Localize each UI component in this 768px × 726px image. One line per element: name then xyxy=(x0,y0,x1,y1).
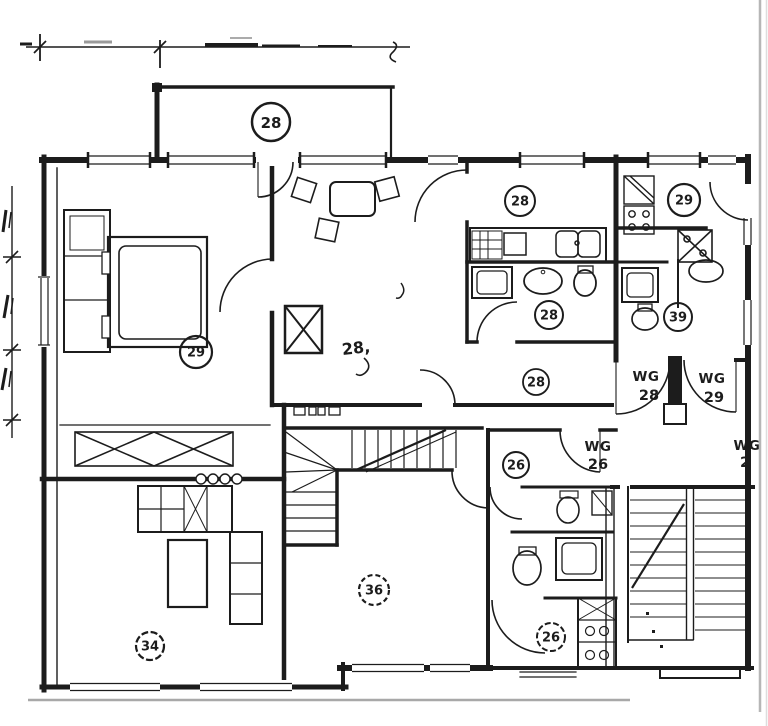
svg-text:WG: WG xyxy=(633,369,660,385)
chimney-shaft xyxy=(285,306,322,353)
room-number-living-handwritten: 28, xyxy=(341,283,404,375)
bed xyxy=(102,237,207,347)
kitchenette xyxy=(578,598,616,668)
dining-set xyxy=(291,177,399,242)
stove-icon xyxy=(624,206,654,234)
radiator-symbols xyxy=(294,407,340,415)
plan-canvas: 28 29 28 28 28 29 39 26 xyxy=(0,0,768,726)
shower-icon xyxy=(472,267,512,298)
room-number-hall-left: 28 xyxy=(523,369,549,395)
room-number-bath-left: 28 xyxy=(535,301,563,329)
room-number-kitchen-left: 28 xyxy=(505,186,535,216)
svg-text:29: 29 xyxy=(187,346,205,361)
floor-plan-scan: 28 29 28 28 28 29 39 26 xyxy=(0,0,768,726)
svg-text:26: 26 xyxy=(542,631,560,646)
svg-text:28: 28 xyxy=(527,376,545,391)
toilet-icon xyxy=(574,266,596,296)
stair-break-line xyxy=(632,504,684,588)
double-sink-icon xyxy=(556,231,600,257)
door-arc xyxy=(415,170,467,222)
svg-text:26: 26 xyxy=(507,459,525,474)
dimension-line-top xyxy=(20,34,410,68)
kitchen-right-fixtures xyxy=(624,176,654,234)
room-number-hall-wg26: 26 xyxy=(503,452,529,478)
svg-text:29: 29 xyxy=(704,390,724,406)
toilet-icon xyxy=(632,304,658,330)
room-number-bedroom: 29 xyxy=(180,336,212,368)
stove-icon xyxy=(472,231,502,259)
svg-text:34: 34 xyxy=(141,640,159,655)
svg-text:28: 28 xyxy=(511,195,529,210)
counter-grid xyxy=(138,486,232,532)
ink-squiggle xyxy=(396,283,404,298)
windows xyxy=(38,152,754,693)
stair-break-line xyxy=(356,430,446,470)
wg26-bath-middle xyxy=(513,538,602,585)
crossed-box xyxy=(75,432,233,466)
room-number-bath-wg26: 26 xyxy=(537,623,565,651)
washing-machine-icon xyxy=(678,230,712,262)
apartment-label-wg-edge: WG 2 xyxy=(734,438,761,471)
door-arc xyxy=(420,370,455,405)
svg-text:39: 39 xyxy=(669,311,687,326)
bath-left-fixtures xyxy=(472,266,596,298)
furniture xyxy=(64,176,723,668)
svg-text:2: 2 xyxy=(740,455,750,471)
stairs-east xyxy=(630,489,750,648)
room-number-room36: 36 xyxy=(359,575,389,605)
room-number-kitchen-right: 29 xyxy=(668,184,700,216)
washbasin-icon xyxy=(524,268,562,294)
svg-text:29: 29 xyxy=(675,194,693,209)
counter-strip xyxy=(230,532,262,624)
washbasin-icon xyxy=(689,260,723,282)
room-number-room34: 34 xyxy=(136,632,164,660)
svg-text:28: 28 xyxy=(540,309,558,324)
svg-text:26: 26 xyxy=(588,457,608,473)
svg-text:28: 28 xyxy=(261,114,282,132)
door-arc xyxy=(477,302,517,342)
table xyxy=(168,540,207,607)
kitchen-counter xyxy=(470,228,606,262)
svg-text:36: 36 xyxy=(365,584,383,599)
toilet-icon xyxy=(557,497,579,523)
door-arc xyxy=(258,162,293,197)
toilet-icon xyxy=(513,551,541,585)
shower-icon xyxy=(622,268,658,302)
door-arc xyxy=(490,487,522,519)
room-number-balcony: 28 xyxy=(252,103,290,141)
wg26-bath-upper xyxy=(557,491,612,523)
svg-text:WG: WG xyxy=(734,438,761,454)
door-arc xyxy=(220,259,272,312)
door-arc xyxy=(492,600,545,653)
svg-text:WG: WG xyxy=(699,371,726,387)
dimension-line-left xyxy=(2,186,21,438)
sink-unit-icon xyxy=(624,176,654,204)
svg-text:WG: WG xyxy=(585,439,612,455)
apartment-label-wg26: WG 26 xyxy=(585,439,612,473)
apartment-label-wg28: WG 28 xyxy=(633,369,660,404)
ink-flourish xyxy=(356,358,369,375)
svg-text:28,: 28, xyxy=(341,337,371,359)
stairs-main xyxy=(284,430,456,531)
svg-text:28: 28 xyxy=(639,388,659,404)
walls xyxy=(42,83,753,690)
door-arc xyxy=(452,470,488,508)
